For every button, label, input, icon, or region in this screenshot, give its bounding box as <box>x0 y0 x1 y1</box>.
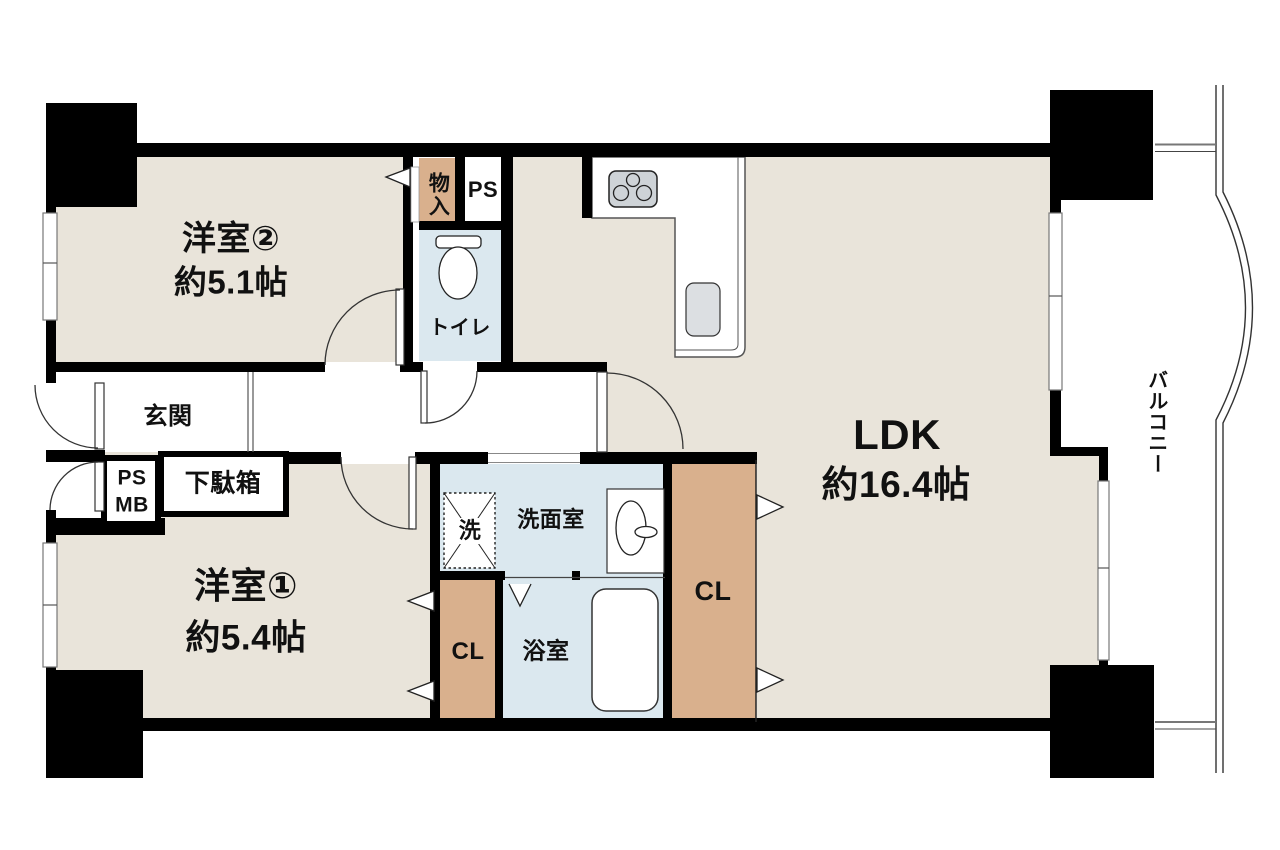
storage-label: 物入 <box>425 172 450 218</box>
room2-door-leaf <box>396 289 404 365</box>
toilet-door-leaf <box>421 371 427 423</box>
wall-top <box>137 143 1050 157</box>
room1-door-leaf <box>409 457 416 529</box>
room2-size-label: 約5.1帖 <box>174 264 288 303</box>
wall-hall-bottom <box>283 452 341 464</box>
floorplan-canvas: 洋室② 約5.1帖 洋室① 約5.4帖 LDK 約16.4帖 玄関 下駄箱 PS… <box>0 0 1280 850</box>
room1-name-label: 洋室① <box>194 565 298 607</box>
wall-bath-top <box>440 571 505 580</box>
window-room2 <box>43 213 57 320</box>
closet-left-label: CL <box>452 638 485 666</box>
ldk-name-label: LDK <box>853 410 941 460</box>
toilet-label: トイレ <box>429 317 491 341</box>
bathtub-icon <box>592 589 658 711</box>
wall-left <box>46 450 105 462</box>
opening-room2-door <box>325 362 400 372</box>
storage-front-strip <box>411 167 419 222</box>
balcony-label: バルコニー <box>1143 370 1167 475</box>
bathroom-label: 浴室 <box>523 637 570 664</box>
entrance-label: 玄関 <box>144 403 193 431</box>
wall-right <box>1050 200 1061 213</box>
window-ldk-lower <box>1098 481 1109 660</box>
ldk-size-label: 約16.4帖 <box>821 463 970 507</box>
basin-icon <box>607 489 664 573</box>
wall-hall-bottom <box>415 452 488 464</box>
toilet-bowl-icon <box>439 247 477 299</box>
entrance-door-leaf <box>95 383 104 449</box>
pillar-bottom-right <box>1050 665 1154 778</box>
ldk-door-leaf <box>597 372 607 452</box>
wall-storage-ps <box>455 157 465 223</box>
pillar-bottom-left <box>46 670 143 778</box>
toilet-tank-icon <box>436 236 481 248</box>
closet-right-label: CL <box>695 576 732 608</box>
stove-burner-icon <box>614 186 629 201</box>
opening-room1-door <box>341 452 415 464</box>
opening-toilet-door <box>423 362 477 372</box>
wall-toilet-top <box>419 221 501 230</box>
stove-burner-icon <box>627 174 640 187</box>
wall-right-lower <box>1099 456 1108 481</box>
wall-kitchen-stub <box>582 155 592 218</box>
wall-hall-top <box>46 362 325 372</box>
wall-bottom <box>143 718 1108 731</box>
wall-right-lower <box>1099 660 1108 672</box>
pillar-top-right <box>1050 90 1153 200</box>
toilet-door-arc <box>425 371 477 423</box>
stove-burner-icon <box>637 186 652 201</box>
room1-size-label: 約5.4帖 <box>185 617 306 658</box>
pillar-top-left <box>46 103 137 207</box>
window-ldk-upper <box>1049 213 1062 390</box>
wall-right-jog <box>1050 447 1108 456</box>
balcony-rail <box>1155 85 1253 773</box>
wall-hall-top <box>477 362 607 372</box>
wall-toilet-right <box>501 155 513 372</box>
meter-box-label-ps: PS <box>117 467 146 492</box>
balcony-rail-outer <box>1223 85 1253 773</box>
wall-bath-top <box>572 571 580 580</box>
washer-label: 洗 <box>458 518 483 544</box>
wall-closet-bath <box>495 580 503 722</box>
meter-box-door-leaf <box>95 462 104 511</box>
pipe-space-label: PS <box>468 177 498 203</box>
entrance-door-arc <box>35 385 98 448</box>
room2-name-label: 洋室② <box>182 219 280 259</box>
kitchen-sink-icon <box>686 283 720 336</box>
wall-right <box>1050 390 1061 456</box>
wall-left <box>46 320 56 383</box>
shoe-cabinet-label: 下駄箱 <box>185 469 262 499</box>
wall-left <box>46 143 56 213</box>
meter-box-label-mb: MB <box>115 494 149 519</box>
washroom-label: 洗面室 <box>517 507 585 533</box>
balcony-rail-inner <box>1216 85 1246 773</box>
